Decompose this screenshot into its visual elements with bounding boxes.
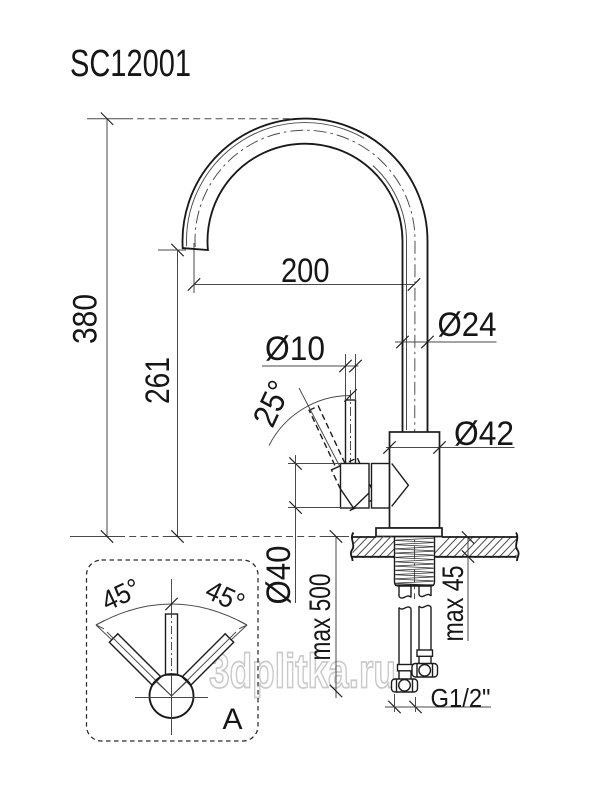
svg-text:max 500: max 500 — [304, 574, 337, 661]
svg-text:380: 380 — [67, 294, 105, 344]
svg-text:Ø24: Ø24 — [438, 306, 497, 344]
svg-text:A: A — [223, 703, 243, 736]
svg-text:Ø40: Ø40 — [260, 546, 298, 605]
svg-text:45°: 45° — [201, 574, 249, 619]
svg-text:max 45: max 45 — [437, 566, 470, 642]
svg-text:200: 200 — [281, 252, 330, 290]
svg-text:G1/2": G1/2" — [431, 683, 491, 713]
svg-text:Ø42: Ø42 — [454, 415, 514, 453]
svg-text:261: 261 — [139, 357, 177, 404]
svg-text:25°: 25° — [245, 375, 298, 432]
svg-text:Ø10: Ø10 — [265, 330, 325, 368]
svg-text:45°: 45° — [97, 572, 145, 617]
svg-text:3dplitka.ru: 3dplitka.ru — [209, 646, 396, 699]
svg-text:SC12001: SC12001 — [70, 43, 191, 85]
